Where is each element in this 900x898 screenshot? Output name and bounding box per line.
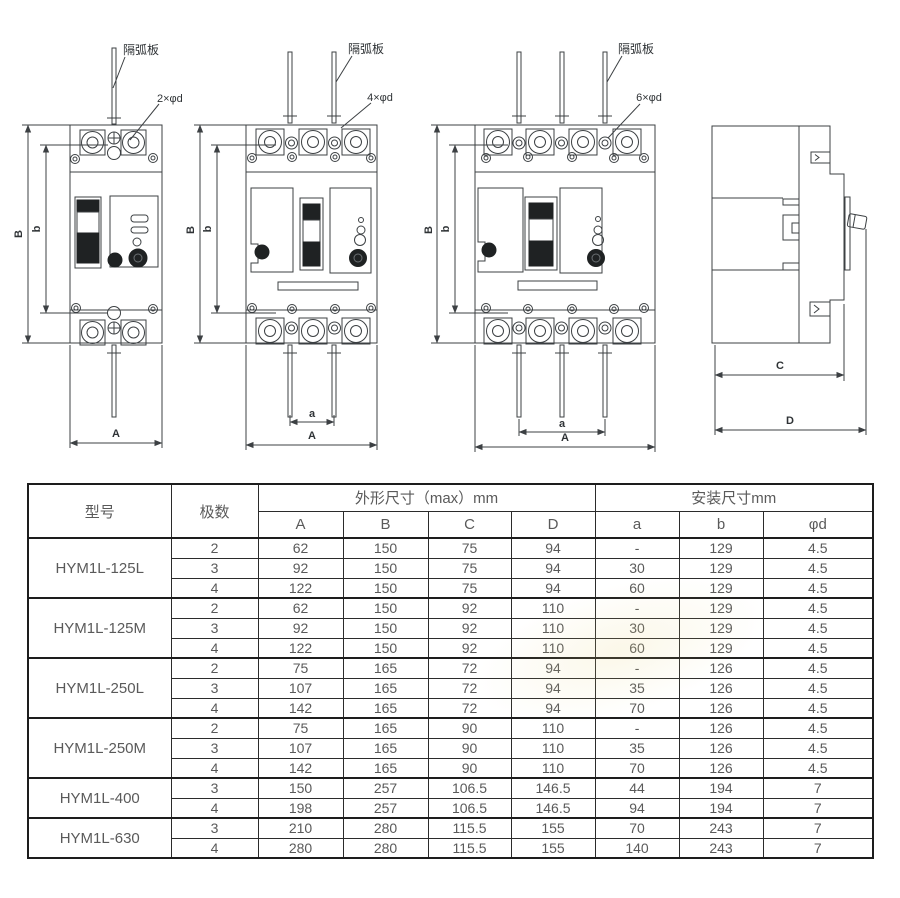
dim-cell-phid: 7: [763, 838, 873, 858]
dim-cell-D: 110: [511, 718, 595, 738]
dim-cell-B: 150: [343, 598, 428, 618]
poles-cell: 2: [171, 658, 258, 678]
dim-cell-A: 75: [258, 718, 343, 738]
dim-cell-C: 75: [428, 538, 511, 558]
table-row: HYM1L-250M27516590110-1264.5: [28, 718, 873, 738]
dim-cell-a: 94: [595, 798, 679, 818]
control-panel: [330, 188, 371, 273]
dim-cell-B: 165: [343, 658, 428, 678]
dim-label-b: b: [202, 225, 214, 232]
table-row: HYM1L-125M26215092110-1294.5: [28, 598, 873, 618]
poles-cell: 3: [171, 678, 258, 698]
dim-cell-A: 92: [258, 558, 343, 578]
reset-button: [129, 249, 147, 267]
dim-cell-B: 257: [343, 798, 428, 818]
control-panel: [108, 196, 158, 267]
dim-label-B: B: [423, 226, 435, 234]
dim-cell-D: 94: [511, 658, 595, 678]
page: 隔弧板 2×φd: [0, 0, 900, 898]
dim-cell-A: 142: [258, 758, 343, 778]
reset-button: [350, 250, 367, 267]
poles-cell: 3: [171, 738, 258, 758]
dim-cell-D: 155: [511, 838, 595, 858]
dim-cell-A: 150: [258, 778, 343, 798]
control-panel: [560, 188, 605, 273]
dim-cell-b: 126: [679, 758, 763, 778]
arc-plate: [512, 52, 612, 123]
dim-cell-a: 35: [595, 738, 679, 758]
dim-cell-a: 70: [595, 758, 679, 778]
dim-cell-B: 150: [343, 578, 428, 598]
dim-label-A: A: [308, 430, 316, 442]
dim-cell-B: 165: [343, 678, 428, 698]
dim-cell-phid: 4.5: [763, 578, 873, 598]
dim-label-C: C: [776, 360, 784, 372]
toggle-handle: [525, 197, 557, 270]
poles-cell: 3: [171, 818, 258, 838]
dim-cell-b: 129: [679, 618, 763, 638]
poles-cell: 4: [171, 798, 258, 818]
dim-cell-C: 115.5: [428, 838, 511, 858]
dim-cell-B: 165: [343, 758, 428, 778]
header-outline-group: 外形尺寸（max）mm: [258, 484, 595, 511]
header-poles: 极数: [171, 484, 258, 538]
trip-button: [255, 245, 269, 259]
dim-cell-A: 210: [258, 818, 343, 838]
dim-cell-phid: 4.5: [763, 638, 873, 658]
dim-cell-A: 280: [258, 838, 343, 858]
header-install-group: 安装尺寸mm: [595, 484, 873, 511]
dim-cell-C: 75: [428, 578, 511, 598]
dim-cell-phid: 4.5: [763, 738, 873, 758]
dim-cell-a: 30: [595, 558, 679, 578]
header-col-B: B: [343, 511, 428, 538]
dim-cell-B: 280: [343, 818, 428, 838]
arc-plate-label: 隔弧板: [123, 43, 159, 57]
table-row: HYM1L-125L2621507594-1294.5: [28, 538, 873, 558]
dim-cell-C: 92: [428, 618, 511, 638]
dim-cell-C: 90: [428, 718, 511, 738]
poles-cell: 3: [171, 778, 258, 798]
dim-cell-A: 122: [258, 638, 343, 658]
header-col-b: b: [679, 511, 763, 538]
dim-cell-A: 107: [258, 678, 343, 698]
dim-cell-a: -: [595, 718, 679, 738]
dim-cell-A: 75: [258, 658, 343, 678]
arc-plate: [107, 345, 121, 417]
dim-cell-A: 198: [258, 798, 343, 818]
dim-cell-B: 165: [343, 718, 428, 738]
poles-cell: 4: [171, 698, 258, 718]
poles-cell: 4: [171, 758, 258, 778]
dim-cell-a: -: [595, 598, 679, 618]
model-cell: HYM1L-630: [28, 818, 171, 858]
dim-cell-phid: 4.5: [763, 718, 873, 738]
dim-cell-b: 129: [679, 638, 763, 658]
table-row: HYM1L-250L2751657294-1264.5: [28, 658, 873, 678]
poles-cell: 3: [171, 558, 258, 578]
header-model: 型号: [28, 484, 171, 538]
dim-cell-a: 70: [595, 698, 679, 718]
arc-plate-label: 隔弧板: [618, 42, 654, 56]
dim-cell-C: 106.5: [428, 778, 511, 798]
dim-cell-D: 94: [511, 678, 595, 698]
dim-cell-phid: 4.5: [763, 678, 873, 698]
dim-cell-phid: 4.5: [763, 658, 873, 678]
model-cell: HYM1L-250L: [28, 658, 171, 718]
poles-cell: 4: [171, 638, 258, 658]
arc-plate: [283, 345, 341, 417]
dim-cell-phid: 4.5: [763, 538, 873, 558]
dim-cell-B: 165: [343, 698, 428, 718]
poles-cell: 3: [171, 618, 258, 638]
toggle-handle: [75, 197, 101, 268]
dim-cell-D: 94: [511, 558, 595, 578]
dim-cell-phid: 4.5: [763, 558, 873, 578]
dim-cell-A: 142: [258, 698, 343, 718]
trip-button: [482, 243, 496, 257]
dim-cell-a: 140: [595, 838, 679, 858]
dim-label-A: A: [112, 428, 120, 440]
dimension-drawings: 隔弧板 2×φd: [0, 0, 900, 470]
dim-cell-A: 62: [258, 598, 343, 618]
model-cell: HYM1L-125M: [28, 598, 171, 658]
drawing-3pole-front: 隔弧板 4×φd: [186, 16, 428, 468]
breaker-body: [475, 125, 655, 344]
dim-cell-b: 129: [679, 558, 763, 578]
arc-plate: [283, 52, 341, 123]
dim-cell-B: 150: [343, 638, 428, 658]
poles-cell: 4: [171, 578, 258, 598]
dimension-A: A: [246, 345, 377, 450]
dim-cell-a: 44: [595, 778, 679, 798]
dim-cell-C: 90: [428, 738, 511, 758]
dim-cell-b: 126: [679, 718, 763, 738]
dim-label-D: D: [786, 415, 794, 427]
header-col-D: D: [511, 511, 595, 538]
toggle-handle: [300, 198, 323, 270]
dim-cell-a: 70: [595, 818, 679, 838]
holes-count-label: 6×φd: [636, 92, 662, 104]
dim-label-a: a: [309, 408, 316, 420]
dim-cell-a: 60: [595, 578, 679, 598]
dimensions-table: 型号 极数 外形尺寸（max）mm 安装尺寸mm A B C D a b φd …: [27, 483, 874, 859]
dim-label-B: B: [185, 226, 197, 234]
poles-cell: 2: [171, 598, 258, 618]
dim-cell-phid: 7: [763, 798, 873, 818]
dim-cell-b: 129: [679, 578, 763, 598]
dim-cell-phid: 4.5: [763, 758, 873, 778]
dim-cell-b: 194: [679, 798, 763, 818]
dim-cell-b: 126: [679, 698, 763, 718]
dim-cell-phid: 7: [763, 818, 873, 838]
model-cell: HYM1L-125L: [28, 538, 171, 598]
table-header-row-groups: 型号 极数 外形尺寸（max）mm 安装尺寸mm: [28, 484, 873, 511]
table-row: HYM1L-4003150257106.5146.5441947: [28, 778, 873, 798]
dim-cell-B: 150: [343, 538, 428, 558]
dim-cell-C: 115.5: [428, 818, 511, 838]
dim-cell-b: 126: [679, 658, 763, 678]
dim-cell-B: 165: [343, 738, 428, 758]
dimension-b: b: [440, 145, 508, 313]
dim-cell-b: 194: [679, 778, 763, 798]
dim-cell-a: 60: [595, 638, 679, 658]
dim-cell-D: 110: [511, 738, 595, 758]
dim-cell-b: 126: [679, 678, 763, 698]
dim-label-a: a: [559, 418, 566, 430]
model-cell: HYM1L-400: [28, 778, 171, 818]
dimension-B: B: [185, 125, 246, 343]
dim-cell-D: 146.5: [511, 778, 595, 798]
dimension-B: B: [13, 125, 70, 343]
arc-plate: [512, 345, 612, 417]
dim-cell-D: 110: [511, 638, 595, 658]
poles-cell: 4: [171, 838, 258, 858]
dim-cell-C: 75: [428, 558, 511, 578]
dim-cell-D: 110: [511, 598, 595, 618]
dim-cell-D: 155: [511, 818, 595, 838]
dim-cell-phid: 4.5: [763, 698, 873, 718]
poles-cell: 2: [171, 538, 258, 558]
dim-cell-C: 72: [428, 698, 511, 718]
dim-label-B: B: [13, 230, 25, 238]
header-col-C: C: [428, 511, 511, 538]
dimension-C: C: [715, 304, 844, 435]
dim-cell-b: 126: [679, 738, 763, 758]
dim-cell-A: 107: [258, 738, 343, 758]
dim-cell-A: 62: [258, 538, 343, 558]
dim-cell-A: 122: [258, 578, 343, 598]
dim-cell-phid: 7: [763, 778, 873, 798]
dim-cell-b: 243: [679, 818, 763, 838]
dim-cell-b: 243: [679, 838, 763, 858]
drawing-2pole-front: 隔弧板 2×φd: [18, 16, 198, 468]
dimension-A: A: [475, 345, 655, 452]
reset-button: [588, 250, 605, 267]
dim-cell-phid: 4.5: [763, 598, 873, 618]
header-col-A: A: [258, 511, 343, 538]
dim-cell-B: 150: [343, 618, 428, 638]
dim-cell-a: 30: [595, 618, 679, 638]
dimension-a: a: [290, 408, 334, 426]
drawing-side-view: C D: [700, 95, 885, 445]
dim-cell-D: 110: [511, 618, 595, 638]
dim-cell-a: 35: [595, 678, 679, 698]
dim-cell-D: 94: [511, 698, 595, 718]
spec-table-body: HYM1L-125L2621507594-1294.53921507594301…: [28, 538, 873, 858]
dim-cell-C: 90: [428, 758, 511, 778]
poles-cell: 2: [171, 718, 258, 738]
label-strip: [518, 281, 597, 290]
dim-cell-a: -: [595, 658, 679, 678]
dim-cell-a: -: [595, 538, 679, 558]
dim-cell-B: 280: [343, 838, 428, 858]
dim-cell-A: 92: [258, 618, 343, 638]
dim-cell-B: 257: [343, 778, 428, 798]
dim-cell-C: 72: [428, 678, 511, 698]
dim-cell-C: 72: [428, 658, 511, 678]
dim-cell-D: 94: [511, 578, 595, 598]
header-col-phid: φd: [763, 511, 873, 538]
label-strip: [278, 282, 358, 290]
table-section: 型号 极数 外形尺寸（max）mm 安装尺寸mm A B C D a b φd …: [0, 470, 900, 859]
header-col-a: a: [595, 511, 679, 538]
holes-count-label: 4×φd: [367, 92, 393, 104]
dim-label-A: A: [561, 432, 569, 444]
drawing-4pole-front: 隔弧板 6×φd: [428, 16, 690, 468]
dim-cell-C: 106.5: [428, 798, 511, 818]
dim-cell-D: 110: [511, 758, 595, 778]
dim-cell-D: 94: [511, 538, 595, 558]
dim-cell-b: 129: [679, 598, 763, 618]
dim-cell-C: 92: [428, 598, 511, 618]
breaker-body: [246, 125, 377, 344]
model-cell: HYM1L-250M: [28, 718, 171, 778]
dimension-D: D: [715, 229, 866, 435]
dim-label-b: b: [31, 225, 43, 232]
dim-cell-C: 92: [428, 638, 511, 658]
dimension-b: b: [202, 145, 276, 313]
holes-count-label: 2×φd: [157, 93, 183, 105]
breaker-body: [70, 125, 162, 345]
front-plate: [845, 197, 850, 270]
dim-label-b: b: [440, 225, 452, 232]
dim-cell-b: 129: [679, 538, 763, 558]
arc-plate-label: 隔弧板: [348, 42, 384, 56]
dim-cell-phid: 4.5: [763, 618, 873, 638]
dimension-B: B: [423, 125, 475, 343]
dim-cell-D: 146.5: [511, 798, 595, 818]
test-button: [108, 253, 122, 267]
dim-cell-B: 150: [343, 558, 428, 578]
table-row: HYM1L-6303210280115.5155702437: [28, 818, 873, 838]
